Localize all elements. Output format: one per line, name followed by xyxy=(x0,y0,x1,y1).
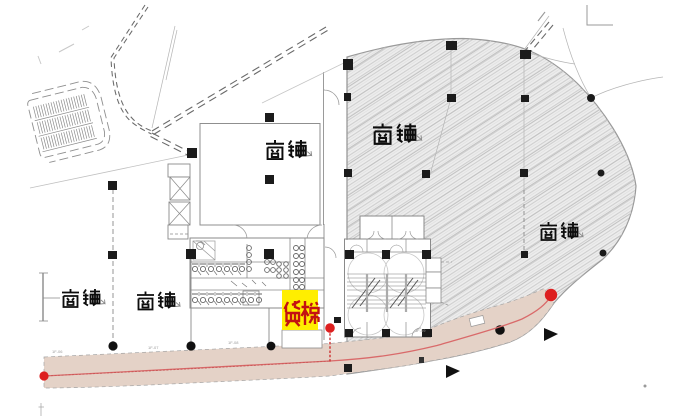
svg-text:1F-07: 1F-07 xyxy=(148,345,159,350)
svg-text:1F-06: 1F-06 xyxy=(52,349,63,354)
svg-text:1F-09: 1F-09 xyxy=(415,328,426,333)
svg-text:1F-08: 1F-08 xyxy=(228,340,239,345)
